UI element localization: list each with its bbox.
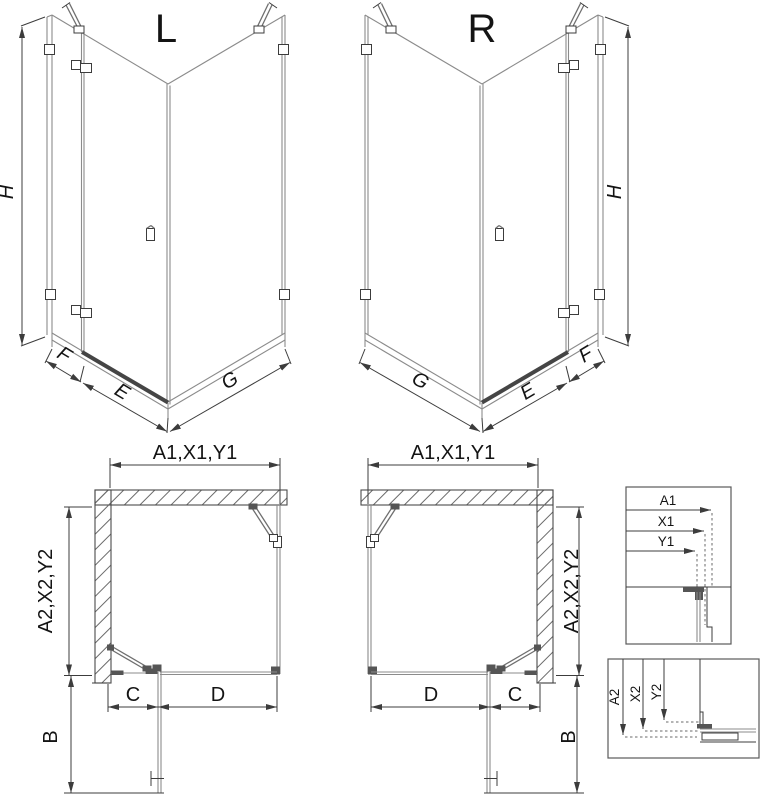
plan-wall-left [92,490,287,683]
plan-top-dim-left: A1,X1,Y1 [153,442,238,464]
dim-label-d-left: D [211,684,225,706]
dim-label-g-left: G [218,367,243,394]
dim-label-b-left: B [40,730,62,743]
technical-drawing-canvas: L R H H F E G F E G A1,X1,Y1 A1,X1,Y1 A2… [0,0,768,800]
dim-label-c-left: C [126,684,140,706]
dim-label-f-left: F [53,342,76,368]
dim-label-c-right: C [508,684,522,706]
detail-label-y2: Y2 [649,684,664,701]
shower-enclosure-dimension-diagram: L R H H F E G F E G A1,X1,Y1 A1,X1,Y1 A2… [0,0,768,800]
plan-top-dim-right: A1,X1,Y1 [411,442,496,464]
detail-box-vertical [608,659,759,758]
dim-label-f-right: F [575,341,598,367]
detail-label-a1: A1 [660,493,677,508]
dim-label-b-right: B [558,730,580,743]
detail-label-x1: X1 [658,514,675,529]
plan-wall-right [361,490,556,683]
dim-label-h-right: H [604,184,626,199]
iso-view-right [359,3,629,434]
plan-side-dim-right: A2,X2,Y2 [561,549,583,634]
detail-label-x2: X2 [628,686,643,703]
detail-label-a2: A2 [607,689,622,706]
dim-label-h-left: H [0,184,18,199]
dim-label-d-right: D [424,684,438,706]
dim-label-g-right: G [408,367,433,394]
variant-letter-left: L [155,7,177,51]
iso-view-left [21,3,291,434]
variant-letter-right: R [468,7,497,51]
detail-label-y1: Y1 [658,534,675,549]
detail-box-horizontal [626,487,731,644]
plan-side-dim-left: A2,X2,Y2 [35,549,57,634]
